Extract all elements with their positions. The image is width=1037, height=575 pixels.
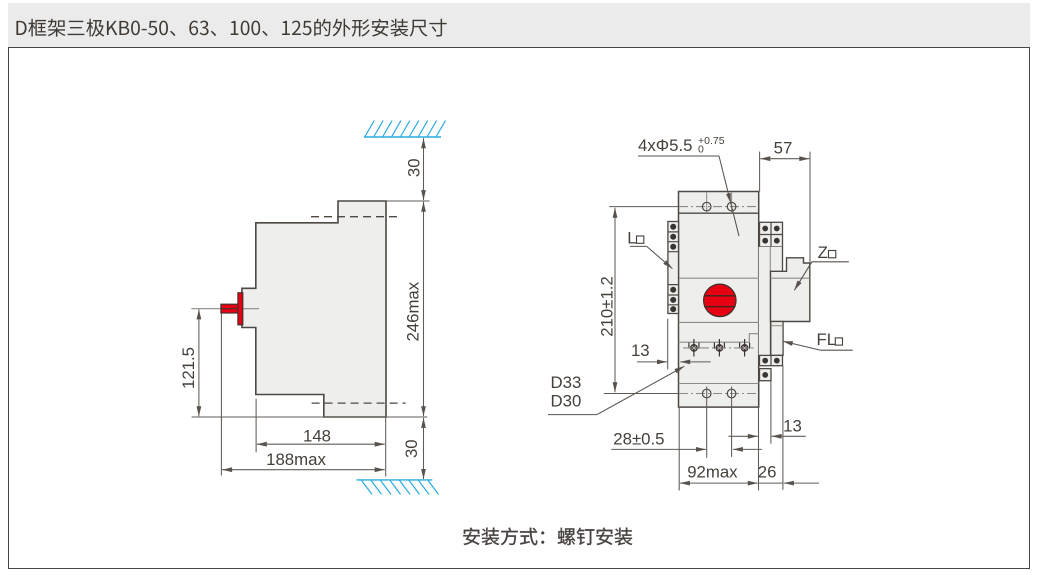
svg-text:30: 30: [402, 439, 421, 458]
svg-text:30: 30: [404, 158, 423, 177]
svg-text:26: 26: [758, 463, 777, 482]
svg-text:148: 148: [303, 427, 331, 446]
svg-text:13: 13: [783, 417, 802, 436]
svg-text:FL: FL: [817, 330, 837, 349]
svg-text:246max: 246max: [404, 281, 423, 341]
svg-text:0: 0: [698, 144, 704, 156]
svg-text:92max: 92max: [687, 463, 738, 482]
svg-text:13: 13: [631, 341, 650, 360]
svg-text:188max: 188max: [266, 450, 326, 469]
svg-text:Z: Z: [818, 243, 828, 262]
svg-text:121.5: 121.5: [179, 347, 198, 389]
svg-text:D33: D33: [551, 373, 582, 392]
svg-text:L: L: [627, 228, 636, 247]
svg-text:57: 57: [774, 139, 793, 158]
svg-text:210±1.2: 210±1.2: [598, 276, 617, 337]
svg-text:D30: D30: [551, 391, 582, 410]
svg-text:4xΦ5.5: 4xΦ5.5: [638, 136, 692, 155]
svg-text:28±0.5: 28±0.5: [613, 430, 664, 449]
